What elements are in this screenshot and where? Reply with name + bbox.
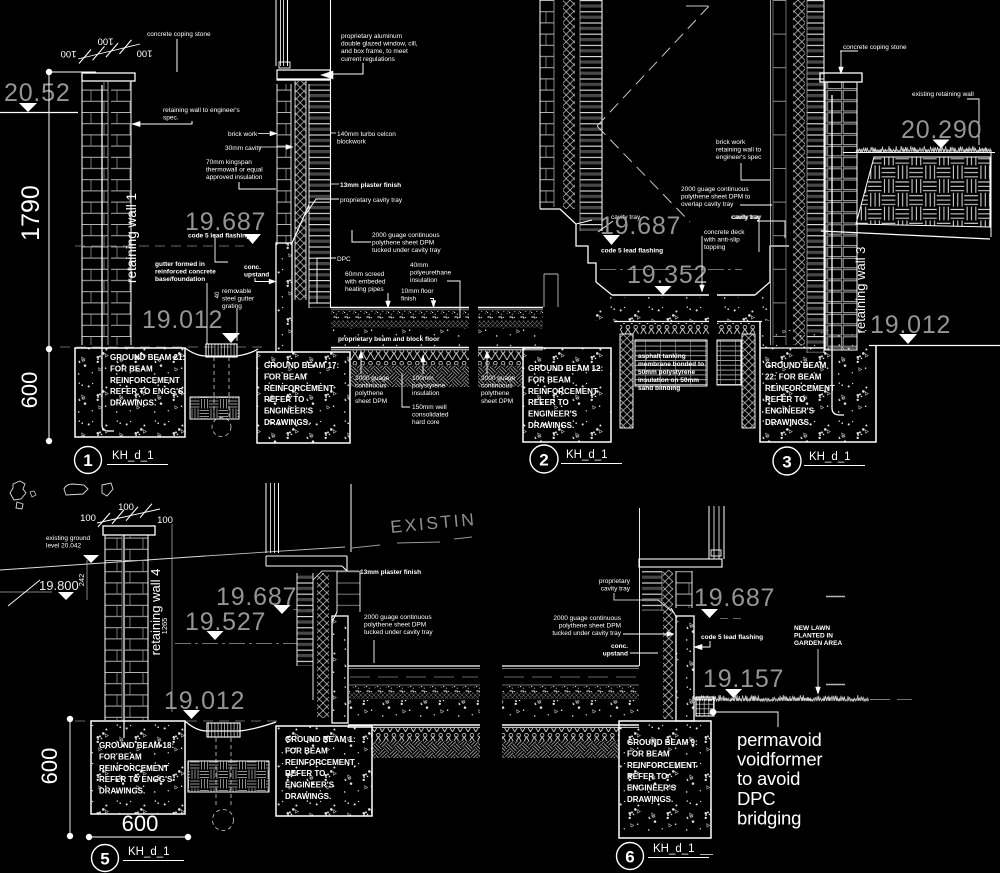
- svg-text:242: 242: [77, 574, 86, 587]
- svg-text:5: 5: [100, 850, 109, 869]
- svg-text:1: 1: [83, 451, 92, 470]
- svg-text:100: 100: [98, 36, 114, 47]
- svg-text:code 5 lead flashing: code 5 lead flashing: [701, 634, 763, 641]
- svg-text:40: 40: [215, 291, 221, 298]
- svg-text:6: 6: [625, 848, 634, 867]
- svg-text:retaining wall 1: retaining wall 1: [124, 193, 139, 283]
- svg-text:2000 guage continuouspolythene: 2000 guage continuouspolythene sheet DPM…: [552, 615, 621, 637]
- svg-text:13mm plaster finish: 13mm plaster finish: [340, 182, 401, 189]
- svg-text:13mm plaster finish: 13mm plaster finish: [360, 569, 421, 576]
- svg-text:100: 100: [118, 502, 134, 513]
- svg-text:100: 100: [157, 515, 173, 526]
- svg-text:19.157: 19.157: [703, 665, 784, 693]
- svg-text:concrete coping stone: concrete coping stone: [843, 44, 907, 51]
- svg-text:proprietary beam and block flo: proprietary beam and block floor: [338, 336, 440, 343]
- svg-text:19.687: 19.687: [694, 584, 775, 612]
- svg-text:KH_d_1: KH_d_1: [112, 450, 154, 462]
- svg-text:2: 2: [539, 451, 548, 470]
- svg-text:100: 100: [137, 48, 153, 59]
- svg-text:19.527: 19.527: [185, 608, 266, 636]
- svg-text:concrete coping stone: concrete coping stone: [147, 31, 211, 38]
- svg-text:KH_d_1: KH_d_1: [809, 451, 851, 463]
- svg-text:2000 guage continuouspolythene: 2000 guage continuouspolythene sheet DPM…: [364, 614, 433, 636]
- svg-text:100: 100: [61, 48, 77, 59]
- svg-text:19.012: 19.012: [164, 687, 245, 715]
- svg-text:existing retaining wall: existing retaining wall: [912, 91, 974, 98]
- svg-text:600: 600: [37, 748, 62, 785]
- svg-text:code 5 lead flashing: code 5 lead flashing: [188, 233, 250, 240]
- svg-text:3: 3: [782, 453, 791, 472]
- svg-text:1265: 1265: [160, 618, 169, 635]
- svg-text:600: 600: [17, 372, 42, 409]
- svg-text:2000 guage continuouspolythene: 2000 guage continuouspolythene sheet DPM…: [372, 232, 441, 254]
- svg-text:brick work: brick work: [228, 131, 258, 138]
- svg-text:20.52: 20.52: [4, 79, 71, 107]
- svg-text:KH_d_1: KH_d_1: [128, 846, 170, 858]
- svg-text:DPC: DPC: [337, 256, 351, 263]
- svg-text:60mm screedwith embededheating: 60mm screedwith embededheating pipes: [344, 271, 386, 293]
- svg-text:600: 600: [122, 811, 159, 836]
- svg-text:KH_d_1: KH_d_1: [653, 843, 695, 855]
- svg-text:19.352: 19.352: [627, 261, 708, 289]
- svg-text:KH_d_1: KH_d_1: [566, 449, 608, 461]
- svg-text:retaining wall 4: retaining wall 4: [148, 569, 163, 656]
- svg-text:1790: 1790: [17, 185, 45, 241]
- svg-text:code 5 lead flashing: code 5 lead flashing: [601, 248, 663, 255]
- svg-text:retaining wall 3: retaining wall 3: [853, 247, 868, 334]
- svg-text:19.012: 19.012: [142, 306, 223, 334]
- svg-text:100: 100: [80, 513, 96, 524]
- svg-text:19.800: 19.800: [39, 578, 79, 593]
- svg-text:proprietarycavity tray: proprietarycavity tray: [599, 578, 631, 593]
- svg-text:proprietary cavity tray: proprietary cavity tray: [340, 197, 403, 204]
- svg-text:vable: vable: [236, 288, 252, 295]
- svg-text:30mm cavity: 30mm cavity: [225, 145, 262, 152]
- svg-text:cavity tray: cavity tray: [731, 214, 761, 221]
